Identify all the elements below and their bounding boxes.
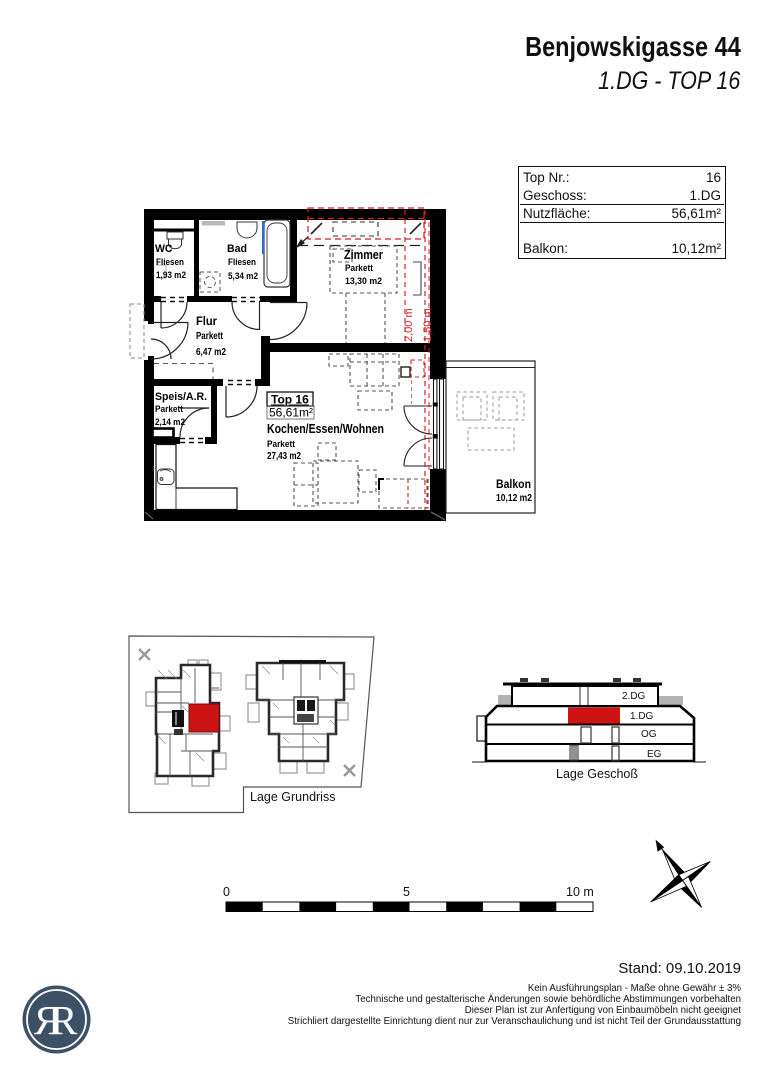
svg-text:Parkett: Parkett (155, 404, 183, 414)
svg-text:Parkett: Parkett (196, 331, 224, 342)
svg-text:Flur: Flur (196, 314, 217, 328)
svg-text:2.DG: 2.DG (622, 691, 646, 702)
svg-text:1,50 m: 1,50 m (422, 308, 434, 342)
svg-text:6,47 m2: 6,47 m2 (196, 347, 226, 358)
svg-text:27,43 m2: 27,43 m2 (267, 451, 301, 462)
svg-text:Fliesen: Fliesen (228, 257, 256, 267)
svg-text:13,30 m2: 13,30 m2 (345, 276, 382, 287)
svg-text:2,14 m2: 2,14 m2 (155, 417, 185, 427)
svg-text:5: 5 (403, 885, 410, 899)
svg-text:Balkon: Balkon (496, 479, 531, 491)
svg-text:10,12 m2: 10,12 m2 (496, 492, 532, 504)
svg-text:56,61m²: 56,61m² (269, 406, 313, 420)
svg-text:R: R (50, 997, 78, 1043)
svg-text:Fliesen: Fliesen (156, 257, 184, 267)
svg-text:5,34 m2: 5,34 m2 (228, 271, 258, 281)
svg-text:Kochen/Essen/Wohnen: Kochen/Essen/Wohnen (267, 421, 384, 436)
svg-text:Bad: Bad (227, 243, 247, 255)
svg-text:0: 0 (223, 885, 230, 899)
svg-text:Top 16: Top 16 (271, 393, 309, 407)
svg-text:Parkett: Parkett (345, 263, 374, 274)
svg-text:1,93 m2: 1,93 m2 (156, 270, 186, 280)
svg-text:10 m: 10 m (566, 885, 594, 899)
svg-text:Lage Grundriss: Lage Grundriss (250, 790, 335, 804)
svg-text:EG: EG (647, 749, 662, 760)
svg-text:Lage Geschoß: Lage Geschoß (556, 767, 638, 781)
svg-text:Parkett: Parkett (267, 439, 296, 450)
svg-text:1.DG: 1.DG (630, 711, 654, 722)
svg-text:WC: WC (155, 243, 173, 255)
svg-text:Zimmer: Zimmer (344, 247, 383, 262)
svg-text:Speis/A.R.: Speis/A.R. (155, 391, 207, 403)
svg-text:2,00 m: 2,00 m (403, 308, 415, 342)
svg-text:OG: OG (641, 729, 657, 740)
